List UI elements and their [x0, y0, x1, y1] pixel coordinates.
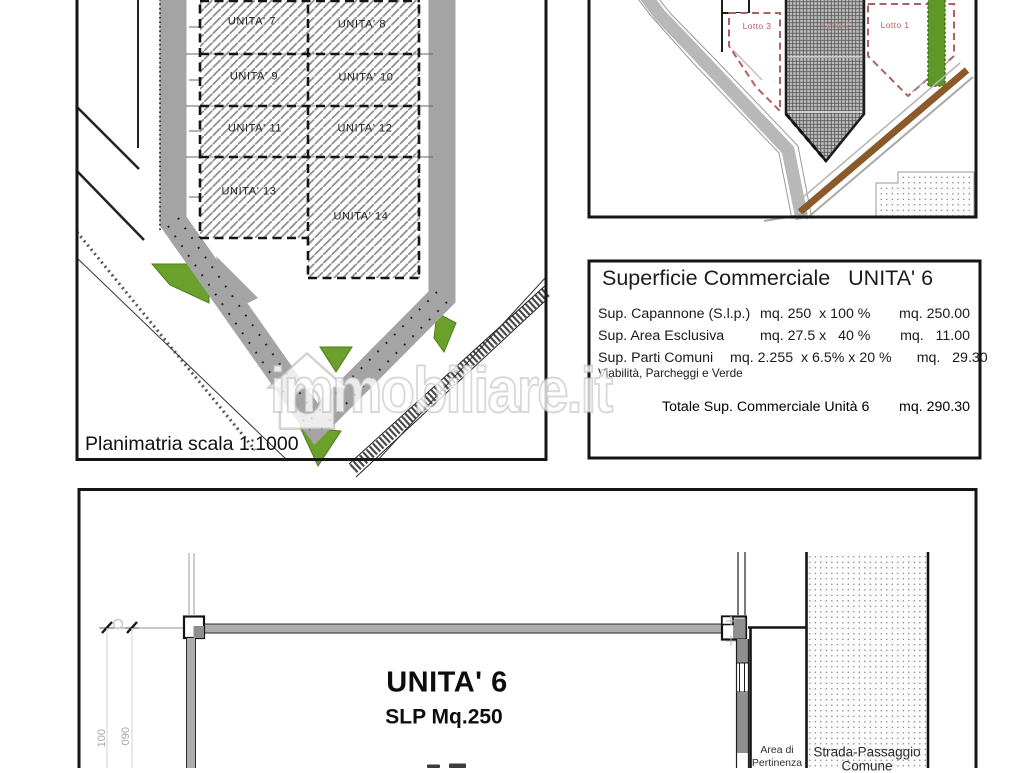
row-result: mq. 250.00 [874, 306, 970, 322]
lot-3-label: Lotto 3 [743, 22, 772, 31]
site-plan-panel [76, 0, 547, 477]
green-strip [928, 0, 945, 86]
site-plan-caption: Planimatria scala 1:1000 [85, 435, 299, 455]
floor-plan-title: UNITA' 6 [386, 669, 508, 698]
pertinenza-label-line2: Pertinenza [752, 758, 802, 769]
unit-8-label: UNITA' 8 [338, 20, 386, 31]
surface-table-row: Sup. Parti Comuni mq. 2.255 x 6.5% x 20 … [598, 350, 970, 366]
total-label: Totale Sup. Commerciale Unità 6 [662, 399, 869, 415]
row-label: Sup. Area Esclusiva [598, 328, 760, 344]
unit-13-label: UNITA' 13 [222, 187, 277, 198]
row-result: mq. 29.30 [892, 350, 988, 366]
unit-9-label: UNITA' 9 [230, 72, 278, 83]
strada-label-line2: Comune [841, 759, 892, 773]
row-result: mq. 11.00 [874, 328, 970, 344]
top-wall [204, 624, 722, 633]
surface-table-note: Viabilità, Parcheggi e Verde [598, 368, 743, 380]
unit-14-label: UNITA' 14 [334, 212, 389, 223]
dimension-text-2: 090 [120, 727, 132, 745]
unit-12-label: UNITA' 12 [338, 124, 393, 135]
row-calc: mq. 2.255 x 6.5% x 20 % [730, 350, 892, 366]
strada-strip [808, 552, 927, 768]
row-label: Sup. Parti Comuni [598, 350, 730, 366]
pertinenza-label-line1: Area di [760, 745, 793, 756]
built-area [876, 172, 974, 217]
floor-plan-panel [79, 490, 976, 769]
total-value: mq. 290.30 [899, 399, 970, 415]
row-calc: mq. 250 x 100 % [760, 306, 874, 322]
surface-table-row: Sup. Area Esclusiva mq. 27.5 x 40 % mq. … [598, 328, 970, 344]
blueprint-page: { "watermark": { "text": "immobiliare.it… [0, 0, 1024, 768]
floor-plan-subtitle: SLP Mq.250 [385, 707, 503, 728]
location-map-panel [589, 0, 976, 221]
drawing-layer [0, 0, 1024, 768]
surface-table-row: Sup. Capannone (S.l.p.) mq. 250 x 100 % … [598, 306, 970, 322]
unit-10-label: UNITA' 10 [339, 73, 394, 84]
surface-table-title: Superficie Commerciale UNITA' 6 [602, 268, 933, 290]
dimension-lines [99, 620, 183, 769]
right-wall [737, 639, 749, 768]
dimension-text-1: 100 [96, 729, 108, 747]
lot-1-label: Lotto 1 [881, 21, 910, 30]
lot-2-label: Lotto 2 [822, 21, 851, 30]
row-label: Sup. Capannone (S.l.p.) [598, 306, 760, 322]
row-calc: mq. 27.5 x 40 % [760, 328, 874, 344]
surface-table-total: Totale Sup. Commerciale Unità 6 mq. 290.… [598, 399, 970, 415]
unit-7-label: UNITA' 7 [228, 17, 276, 28]
strada-label-line1: Strada-Passaggio [813, 745, 920, 759]
building-block [186, 0, 433, 280]
unit-11-label: UNITA' 11 [228, 124, 282, 135]
